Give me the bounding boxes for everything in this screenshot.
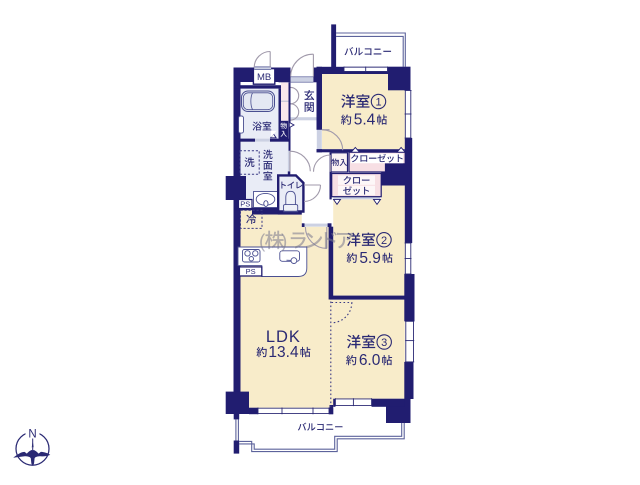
svg-text:5.4: 5.4: [354, 112, 376, 129]
svg-text:PS: PS: [240, 200, 250, 209]
svg-text:3: 3: [381, 337, 387, 349]
svg-text:PS: PS: [246, 267, 256, 276]
svg-text:5.9: 5.9: [359, 250, 381, 267]
svg-text:2: 2: [381, 235, 387, 247]
svg-text:MB: MB: [257, 72, 271, 83]
svg-text:13.4: 13.4: [268, 344, 299, 361]
svg-text:1: 1: [375, 97, 381, 109]
svg-text:6.0: 6.0: [359, 352, 381, 369]
svg-text:(: (: [259, 232, 266, 253]
